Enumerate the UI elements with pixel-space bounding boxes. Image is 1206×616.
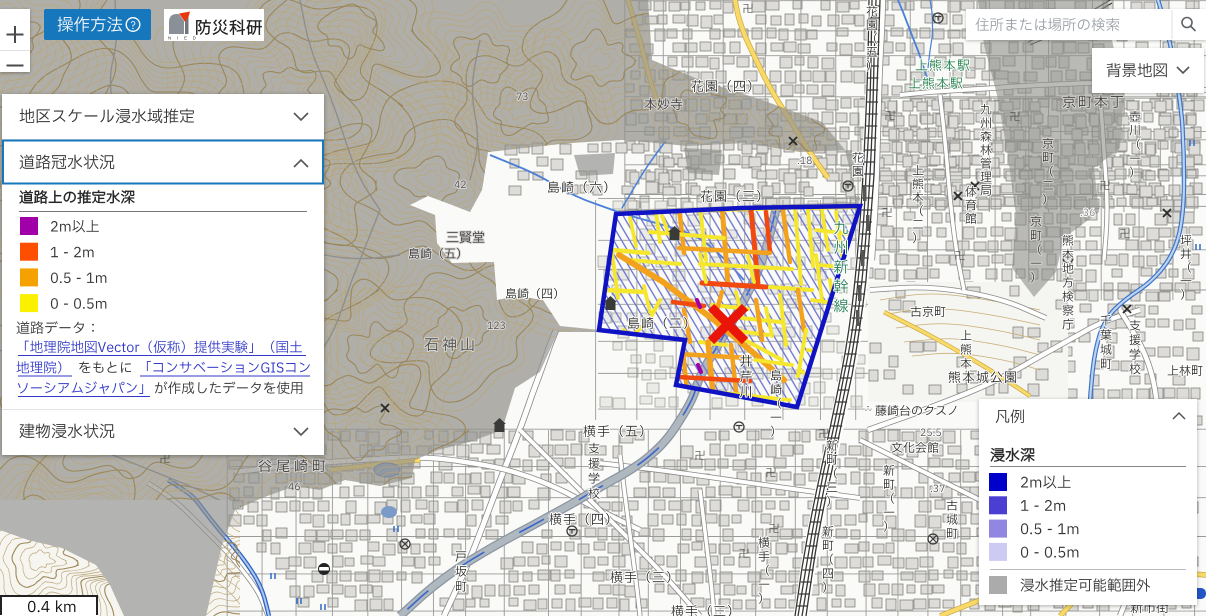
svg-text:N I E D: N I E D: [168, 36, 198, 41]
